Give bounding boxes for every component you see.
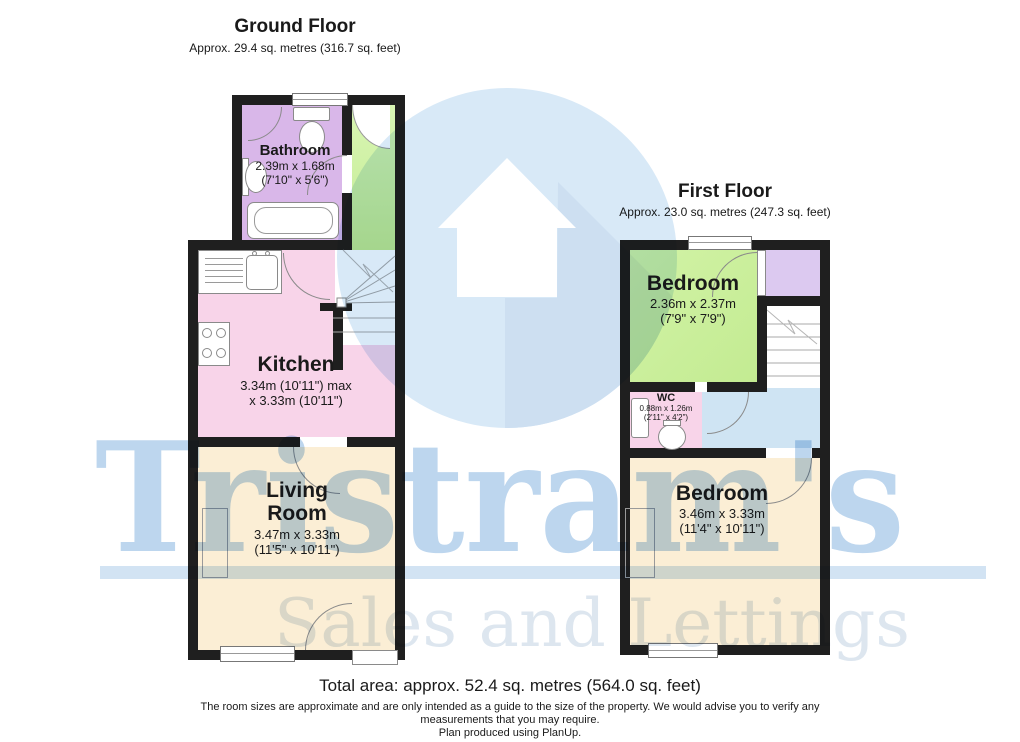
room-name: WC bbox=[626, 392, 706, 404]
wc-label: WC 0.88m x 1.26m (2'11" x 4'2") bbox=[626, 392, 706, 422]
room-name: Living Room bbox=[252, 479, 342, 525]
room-dim-imperial: (11'4" x 10'11") bbox=[632, 521, 812, 536]
first-floor-title: First Floor bbox=[595, 181, 855, 203]
disclaimer-line-3: Plan produced using PlanUp. bbox=[0, 727, 1020, 740]
door-opening bbox=[300, 437, 347, 447]
room-dim-metric: 0.88m x 1.26m bbox=[626, 404, 706, 413]
bathroom-label: Bathroom 2.39m x 1.68m (7'10" x 5'6") bbox=[205, 143, 385, 187]
room-dim-metric: 3.47m x 3.33m bbox=[207, 527, 387, 542]
ground-floor-title: Ground Floor bbox=[165, 16, 425, 38]
living-room-window bbox=[220, 646, 295, 662]
wall-segment bbox=[707, 382, 767, 392]
living-room-label: Living Room 3.47m x 3.33m (11'5" x 10'11… bbox=[207, 479, 387, 557]
bathtub-inner bbox=[254, 207, 333, 234]
staircase-ground bbox=[333, 248, 397, 348]
first-floor-area: Approx. 23.0 sq. metres (247.3 sq. feet) bbox=[565, 205, 885, 219]
bedroom-front-label: Bedroom 2.36m x 2.37m (7'9" x 7'9") bbox=[603, 272, 783, 326]
wall-segment bbox=[188, 240, 352, 250]
wall-segment bbox=[620, 448, 766, 458]
wall-segment bbox=[188, 240, 198, 660]
house-icon bbox=[438, 158, 576, 297]
bedroom-front-window bbox=[688, 236, 752, 250]
room-dim-metric: 2.39m x 1.68m bbox=[205, 159, 385, 173]
disclaimer-line-1: The room sizes are approximate and are o… bbox=[0, 701, 1020, 714]
burner-icon bbox=[216, 328, 226, 338]
kitchen-label: Kitchen 3.34m (10'11") max x 3.33m (10'1… bbox=[206, 352, 386, 408]
ground-floor-area: Approx. 29.4 sq. metres (316.7 sq. feet) bbox=[135, 41, 455, 55]
wall-segment bbox=[342, 193, 352, 250]
floorplan-canvas: Ground Floor Approx. 29.4 sq. metres (31… bbox=[0, 0, 1020, 742]
room-name: Bedroom bbox=[632, 482, 812, 506]
room-dim-metric: 2.36m x 2.37m bbox=[603, 296, 783, 311]
room-dim-imperial: (11'5" x 10'11") bbox=[207, 542, 387, 557]
wall-segment bbox=[347, 437, 405, 447]
total-area-text: Total area: approx. 52.4 sq. metres (564… bbox=[0, 676, 1020, 696]
tap-icon bbox=[265, 251, 270, 256]
room-dim-imperial: (7'9" x 7'9") bbox=[603, 311, 783, 326]
bathroom-window bbox=[292, 93, 348, 106]
room-dim-imperial: (7'10" x 5'6") bbox=[205, 173, 385, 187]
tap-icon bbox=[252, 251, 257, 256]
front-door-leaf bbox=[352, 650, 398, 665]
bedroom-back-label: Bedroom 3.46m x 3.33m (11'4" x 10'11") bbox=[632, 482, 812, 536]
door-opening bbox=[695, 382, 707, 392]
disclaimer-line-2: measurements that you may require. bbox=[0, 714, 1020, 727]
brand-watermark: Tristram's Sales and Lettings bbox=[0, 0, 1020, 742]
wc-toilet-icon bbox=[658, 424, 686, 450]
burner-icon bbox=[202, 328, 212, 338]
sink-drainer bbox=[205, 258, 243, 287]
room-dim-metric: 3.46m x 3.33m bbox=[632, 506, 812, 521]
room-name: Kitchen bbox=[206, 352, 386, 378]
room-dim-imperial: (2'11" x 4'2") bbox=[626, 413, 706, 422]
room-name: Bathroom bbox=[205, 143, 385, 159]
kitchen-sink-icon bbox=[246, 255, 278, 290]
room-name: Bedroom bbox=[603, 272, 783, 296]
wall-segment bbox=[812, 448, 830, 458]
room-dim-metric: 3.34m (10'11") max bbox=[206, 378, 386, 393]
room-dim-imperial: x 3.33m (10'11") bbox=[206, 393, 386, 408]
wall-segment bbox=[395, 95, 405, 660]
door-opening bbox=[766, 448, 812, 458]
toilet-cistern bbox=[293, 107, 330, 121]
wall-segment bbox=[188, 437, 300, 447]
wall-segment bbox=[620, 382, 695, 392]
bedroom-back-window bbox=[648, 643, 718, 658]
